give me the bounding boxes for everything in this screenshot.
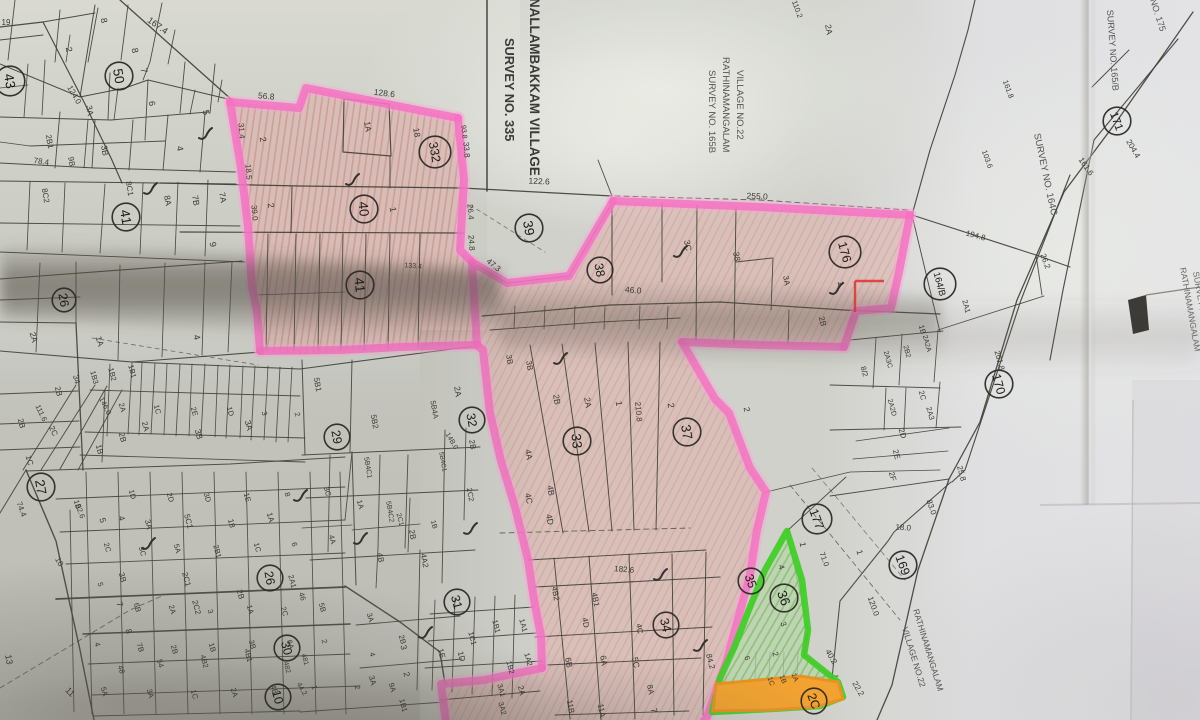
svg-text:7B: 7B xyxy=(190,194,202,206)
svg-text:18: 18 xyxy=(411,127,423,138)
svg-text:182.6: 182.6 xyxy=(614,564,635,575)
svg-text:39.0: 39.0 xyxy=(249,205,259,222)
svg-text:2A: 2A xyxy=(823,23,835,35)
svg-text:4B: 4B xyxy=(545,484,557,496)
svg-text:26.4: 26.4 xyxy=(465,204,475,221)
svg-text:9B: 9B xyxy=(66,156,77,167)
svg-text:31.4: 31.4 xyxy=(236,123,246,140)
svg-text:5C: 5C xyxy=(630,656,642,668)
svg-text:2B: 2B xyxy=(551,393,563,405)
svg-text:8A: 8A xyxy=(162,194,174,206)
svg-text:3A: 3A xyxy=(84,104,96,116)
svg-text:2A: 2A xyxy=(452,385,464,397)
svg-text:SURVEY NO. 165B: SURVEY NO. 165B xyxy=(706,70,717,153)
svg-text:24.8: 24.8 xyxy=(466,235,476,252)
svg-text:7A: 7A xyxy=(217,191,229,203)
svg-text:210.8: 210.8 xyxy=(633,401,644,422)
svg-text:40: 40 xyxy=(356,201,372,217)
svg-text:NALLAMBAKKAM VILLAGE: NALLAMBAKKAM VILLAGE xyxy=(527,0,542,176)
svg-text:41: 41 xyxy=(352,277,368,293)
svg-text:32: 32 xyxy=(463,412,479,428)
svg-text:4B: 4B xyxy=(375,552,386,563)
svg-text:6A: 6A xyxy=(598,654,610,666)
svg-text:38: 38 xyxy=(591,262,607,278)
svg-text:2B: 2B xyxy=(467,439,478,450)
svg-text:4C: 4C xyxy=(523,492,535,504)
svg-text:3B: 3B xyxy=(524,360,535,371)
svg-text:18.0: 18.0 xyxy=(895,522,912,532)
svg-text:19: 19 xyxy=(2,18,11,27)
svg-text:SURVEY NO. 335: SURVEY NO. 335 xyxy=(502,38,517,141)
svg-text:4D: 4D xyxy=(580,617,591,629)
svg-text:13: 13 xyxy=(3,654,15,666)
svg-text:18.5: 18.5 xyxy=(243,164,253,181)
svg-text:3B: 3B xyxy=(99,144,111,156)
svg-text:38: 38 xyxy=(731,251,743,262)
svg-text:93.8: 93.8 xyxy=(459,125,467,139)
svg-text:29: 29 xyxy=(328,429,344,445)
svg-text:26: 26 xyxy=(55,292,71,308)
svg-text:VILLAGE NO.22: VILLAGE NO.22 xyxy=(734,70,745,140)
svg-text:2A: 2A xyxy=(582,396,594,408)
svg-text:27: 27 xyxy=(32,478,49,495)
svg-text:6B: 6B xyxy=(563,656,575,668)
svg-text:37: 37 xyxy=(678,423,695,440)
svg-text:2B: 2B xyxy=(407,529,418,540)
svg-text:255.0: 255.0 xyxy=(746,190,768,201)
svg-text:46.0: 46.0 xyxy=(625,284,643,295)
svg-text:4D: 4D xyxy=(544,513,556,525)
svg-text:1A: 1A xyxy=(362,120,374,132)
svg-text:50: 50 xyxy=(110,67,127,84)
svg-text:26: 26 xyxy=(261,570,277,586)
svg-text:3B: 3B xyxy=(504,354,515,365)
svg-text:RATHINAMANGALAM: RATHINAMANGALAM xyxy=(720,57,731,152)
svg-text:43: 43 xyxy=(1,72,18,89)
svg-text:122.6: 122.6 xyxy=(528,175,550,186)
svg-text:41: 41 xyxy=(117,208,134,225)
svg-text:33.8: 33.8 xyxy=(461,142,471,159)
svg-text:33: 33 xyxy=(569,433,585,449)
svg-text:56.8: 56.8 xyxy=(258,90,276,101)
svg-text:4A: 4A xyxy=(523,448,535,460)
svg-text:4C: 4C xyxy=(634,623,645,635)
svg-text:39: 39 xyxy=(520,219,537,236)
